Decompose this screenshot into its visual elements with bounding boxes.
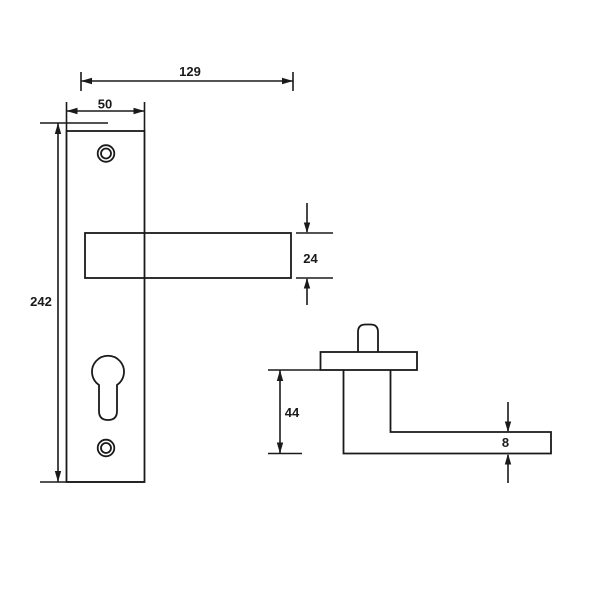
- technical-drawing-page: 129 50 242: [0, 0, 600, 600]
- dim-handle-height: 44: [268, 370, 302, 454]
- side-view: 44 8: [268, 325, 551, 484]
- dim-plate-width: 50: [67, 97, 145, 132]
- dim-label-handle-height: 44: [285, 405, 300, 420]
- rose-outline: [321, 352, 418, 370]
- door-handle-drawing: 129 50 242: [0, 0, 600, 600]
- arrowhead-right-icon: [282, 78, 293, 84]
- keyhole: [92, 356, 124, 420]
- lever-side-outline: [344, 370, 552, 454]
- screw-inner-ring: [101, 149, 111, 159]
- screw-inner-ring: [101, 443, 111, 453]
- arrowhead-down-icon: [304, 223, 310, 234]
- dim-plate-height: 242: [30, 123, 145, 482]
- dim-lever-thickness: 24: [296, 203, 333, 305]
- arrowhead-left-icon: [81, 78, 92, 84]
- lever-front-outline: [85, 233, 291, 278]
- dim-label-lever-thickness: 24: [303, 251, 318, 266]
- dim-label-plate-height: 242: [30, 294, 52, 309]
- arrowhead-up-icon: [505, 454, 511, 465]
- arrowhead-up-icon: [277, 370, 283, 381]
- screw-top: [98, 145, 115, 162]
- dim-label-grip-thickness: 8: [502, 435, 509, 450]
- backplate-outline: [67, 131, 145, 482]
- dim-overall-width: 129: [81, 64, 293, 91]
- arrowhead-right-icon: [134, 108, 145, 114]
- dim-label-overall-width: 129: [179, 64, 201, 79]
- arrowhead-down-icon: [55, 471, 61, 482]
- arrowhead-up-icon: [304, 278, 310, 289]
- dim-grip-thickness: 8: [502, 402, 511, 483]
- screw-bottom: [98, 440, 115, 457]
- dim-label-plate-width: 50: [98, 97, 112, 112]
- arrowhead-up-icon: [55, 123, 61, 134]
- spindle-outline: [358, 325, 378, 353]
- arrowhead-left-icon: [67, 108, 78, 114]
- arrowhead-down-icon: [277, 443, 283, 454]
- arrowhead-down-icon: [505, 422, 511, 433]
